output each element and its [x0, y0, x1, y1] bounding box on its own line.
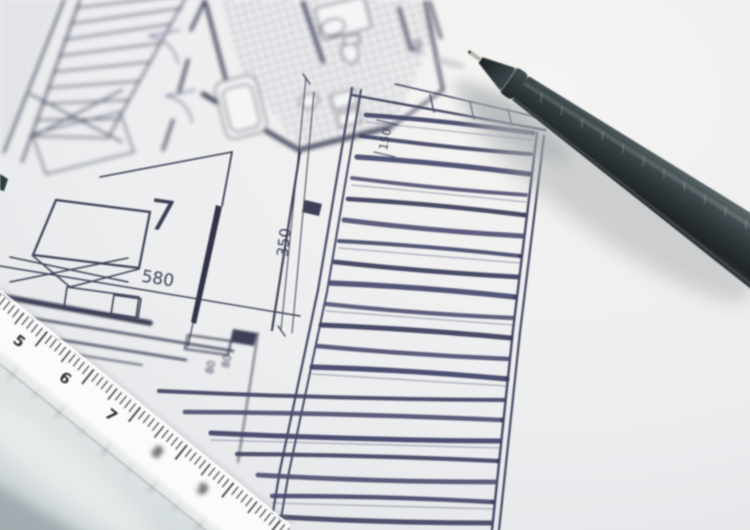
- blueprint-photo: 80 7 580 350: [0, 0, 750, 530]
- photo-canvas: 80 7 580 350: [0, 0, 750, 530]
- vignette: [0, 0, 750, 530]
